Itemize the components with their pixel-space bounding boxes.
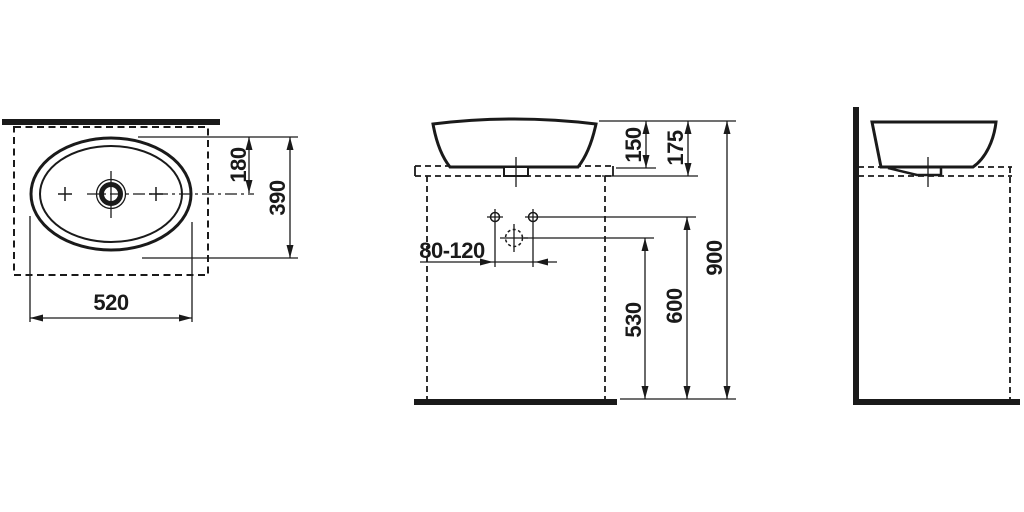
dim-label-basin-height: 150 [621,127,646,162]
arrowhead [179,315,192,322]
arrowhead [684,386,691,399]
dimension-supply-height: 600 [662,217,691,399]
water-supply-right-icon [525,209,541,225]
dimension-drain-offset: 180 [226,137,253,193]
washbasin-dimension-drawing: 520 180 390 [0,0,1024,512]
dim-label-drain-offset: 180 [226,147,251,182]
dimension-basin-height: 150 [621,121,650,168]
dimension-rim-above-counter: 175 [663,121,692,176]
dim-label-supply-height: 600 [662,288,687,323]
dim-label-offset-range: 80-120 [419,238,485,263]
arrowhead [535,259,548,266]
arrowhead [287,137,294,150]
arrowhead [287,245,294,258]
dimension-offset-range: 80-120 [419,238,557,266]
dimension-drain-height: 530 [621,238,649,399]
top-view: 520 180 390 [2,122,298,322]
basin-side-profile [872,122,996,167]
arrowhead [642,238,649,251]
dim-label-rim-above-counter: 175 [663,130,688,165]
dim-label-drain-height: 530 [621,302,646,337]
side-view [853,107,1020,404]
dimension-overall-height: 900 [702,121,731,399]
dim-label-overall-height: 900 [702,240,727,275]
arrowhead [724,121,731,134]
technical-drawing-canvas: 520 180 390 [0,0,1024,512]
front-view: 150 175 900 600 530 [414,119,736,402]
dim-label-depth: 390 [265,180,290,215]
dimension-depth: 390 [265,137,294,258]
arrowhead [642,386,649,399]
arrowhead [684,217,691,230]
dimension-width: 520 [30,290,192,322]
basin-front-profile [433,119,596,167]
dim-label-width: 520 [93,290,128,315]
waste-outlet-icon [500,224,528,252]
arrowhead [724,386,731,399]
drain-trap [888,168,941,175]
water-supply-left-icon [487,209,503,225]
arrowhead [30,315,43,322]
